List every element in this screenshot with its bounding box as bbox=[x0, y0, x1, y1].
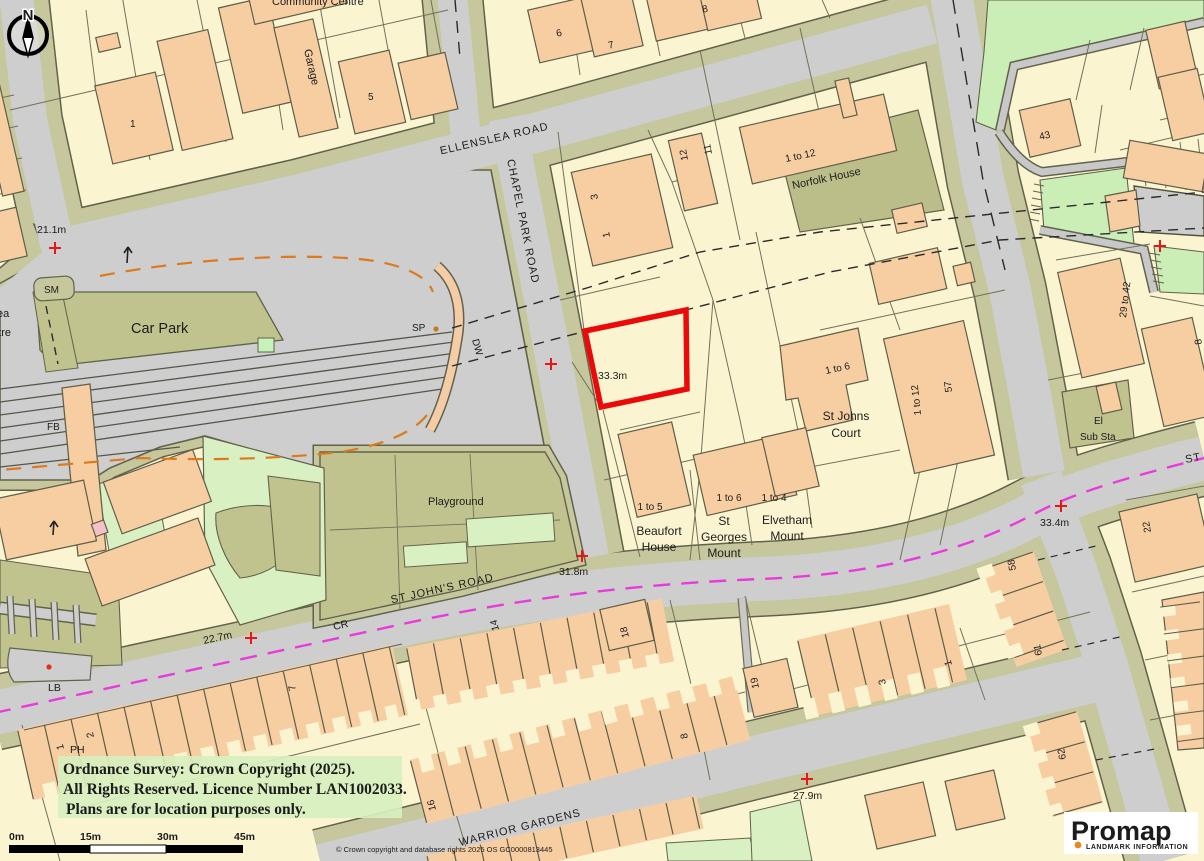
svg-text:27.9m: 27.9m bbox=[793, 790, 822, 802]
svg-text:St: St bbox=[718, 514, 730, 528]
svg-text:Sub Sta: Sub Sta bbox=[1080, 432, 1116, 443]
svg-text:1 to 5: 1 to 5 bbox=[637, 502, 662, 513]
svg-text:Area: Area bbox=[0, 308, 10, 320]
svg-text:SM: SM bbox=[44, 285, 59, 296]
svg-text:LANDMARK INFORMATION: LANDMARK INFORMATION bbox=[1086, 844, 1188, 851]
svg-text:FB: FB bbox=[47, 422, 60, 433]
svg-text:PH: PH bbox=[70, 744, 85, 756]
svg-text:Mount: Mount bbox=[707, 546, 741, 560]
svg-text:El: El bbox=[1094, 416, 1103, 427]
svg-text:Car Park: Car Park bbox=[131, 321, 189, 337]
svg-text:© Crown copyright and database: © Crown copyright and database rights 20… bbox=[336, 845, 553, 854]
svg-text:1 to 4: 1 to 4 bbox=[761, 493, 786, 504]
svg-text:0m: 0m bbox=[9, 831, 24, 843]
svg-text:Plans are for location purpose: Plans are for location purposes only. bbox=[66, 801, 306, 818]
svg-text:Centre: Centre bbox=[0, 327, 11, 339]
svg-text:Georges: Georges bbox=[701, 530, 747, 544]
svg-text:1: 1 bbox=[130, 119, 136, 130]
svg-text:Elvetham: Elvetham bbox=[762, 513, 812, 527]
svg-text:SP: SP bbox=[412, 323, 426, 334]
svg-text:Beaufort: Beaufort bbox=[636, 524, 682, 538]
svg-text:Community Centre: Community Centre bbox=[272, 0, 364, 8]
svg-text:House: House bbox=[642, 540, 677, 554]
svg-text:1 to 6: 1 to 6 bbox=[716, 493, 741, 504]
svg-text:Promap: Promap bbox=[1071, 816, 1172, 846]
svg-text:Court: Court bbox=[831, 426, 861, 440]
svg-text:15m: 15m bbox=[80, 831, 101, 843]
svg-text:Ordnance Survey: Crown Copyrig: Ordnance Survey: Crown Copyright (2025). bbox=[63, 761, 355, 778]
svg-text:57: 57 bbox=[943, 380, 955, 393]
svg-text:45m: 45m bbox=[234, 831, 255, 843]
svg-text:Mount: Mount bbox=[770, 529, 804, 543]
svg-text:All Rights Reserved. Licence N: All Rights Reserved. Licence Number LAN1… bbox=[63, 781, 407, 798]
svg-text:21.1m: 21.1m bbox=[37, 224, 66, 236]
svg-text:33.4m: 33.4m bbox=[1040, 517, 1069, 529]
svg-text:St Johns: St Johns bbox=[823, 409, 870, 423]
svg-text:33.3m: 33.3m bbox=[598, 370, 627, 382]
svg-text:5: 5 bbox=[368, 92, 374, 103]
svg-text:N: N bbox=[23, 7, 34, 24]
svg-text:30m: 30m bbox=[157, 831, 178, 843]
svg-text:31.8m: 31.8m bbox=[559, 566, 588, 578]
svg-text:LB: LB bbox=[48, 682, 61, 694]
svg-text:Playground: Playground bbox=[428, 496, 484, 508]
